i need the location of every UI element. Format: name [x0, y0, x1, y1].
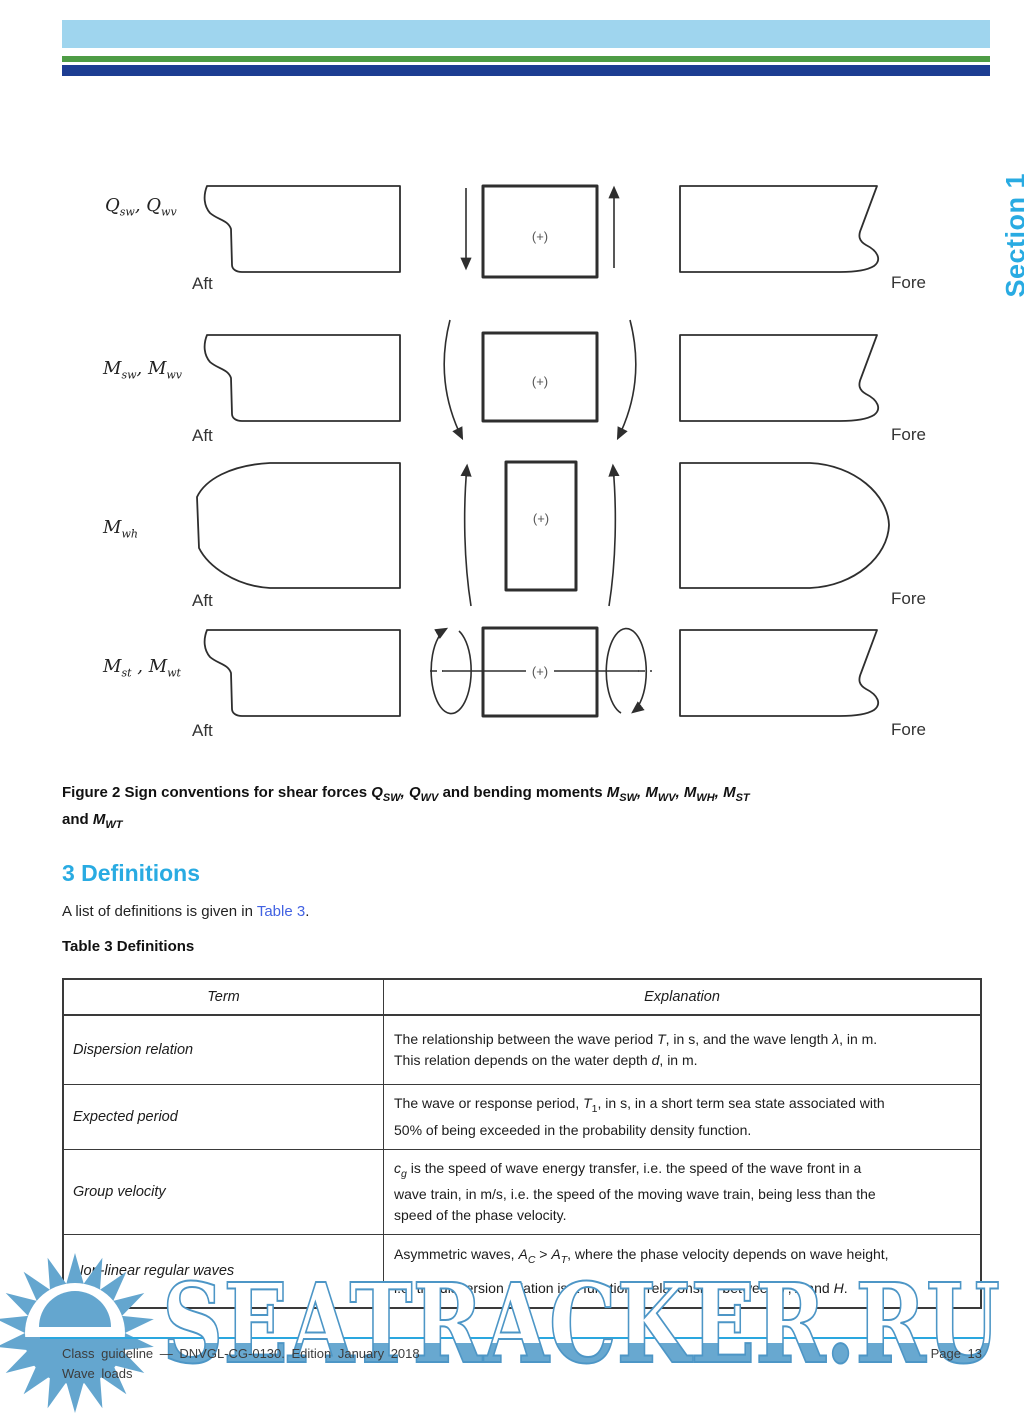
aft-hull-profile	[205, 186, 400, 272]
figure-caption: Figure 2 Sign conventions for shear forc…	[62, 782, 967, 836]
header-bar-lightblue	[62, 20, 990, 48]
plus-sign-label: (+)	[532, 229, 548, 244]
footer-guideline-id: Class guideline — DNVGL-CG-0130. Edition…	[62, 1344, 420, 1364]
footer-document-title: Wave loads	[62, 1364, 982, 1384]
plus-sign-label: (+)	[532, 374, 548, 389]
aft-hull-profile	[205, 335, 400, 421]
definitions-intro: A list of definitions is given in Table …	[62, 903, 309, 920]
fore-hull-profile	[680, 630, 878, 716]
aft-label: Aft	[192, 591, 213, 610]
aft-hull-plan	[197, 463, 400, 588]
table-header-explanation: Explanation	[384, 979, 982, 1015]
sun-logo	[0, 1253, 155, 1413]
table-3-link[interactable]: Table 3	[257, 903, 305, 920]
section-heading-definitions: 3 Definitions	[62, 860, 200, 887]
intro-text-suffix: .	[305, 903, 309, 920]
page-footer: Class guideline — DNVGL-CG-0130. Edition…	[62, 1344, 982, 1384]
header-bar-green	[62, 56, 990, 62]
fore-label: Fore	[891, 720, 926, 739]
aft-label: Aft	[192, 721, 213, 740]
aft-label: Aft	[192, 426, 213, 445]
explanation-cell: cg is the speed of wave energy transfer,…	[384, 1150, 982, 1235]
figure-row-label-vertical-bending: Msw, Mwv	[103, 358, 182, 382]
fore-label: Fore	[891, 425, 926, 444]
term-cell: Dispersion relation	[63, 1015, 384, 1085]
horiz-bending-arrow-left	[465, 466, 471, 606]
bending-arrow-left	[444, 320, 462, 438]
figure-row-label-shear: Qsw, Qwv	[105, 195, 177, 219]
figure-row-label-horizontal-bending: Mwh	[103, 517, 138, 541]
fore-hull-profile	[680, 186, 878, 272]
table-header-term: Term	[63, 979, 384, 1015]
table-row: Expected period The wave or response per…	[63, 1085, 981, 1150]
plus-sign-label: (+)	[532, 664, 548, 679]
fore-hull-plan	[680, 463, 889, 588]
explanation-cell: The relationship between the wave period…	[384, 1015, 982, 1085]
sign-box-row3	[506, 462, 576, 590]
table-title: Table 3 Definitions	[62, 938, 194, 955]
fore-label: Fore	[891, 273, 926, 292]
term-cell: Expected period	[63, 1085, 384, 1150]
table-header-row: Term Explanation	[63, 979, 981, 1015]
aft-hull-profile	[205, 630, 400, 716]
term-cell: Group velocity	[63, 1150, 384, 1235]
section-tab: Section 1	[1001, 158, 1024, 298]
horiz-bending-arrow-right	[609, 466, 615, 606]
plus-sign-label: (+)	[533, 511, 549, 526]
page: { "colors": { "bar-lightblue": "#9FD5EE"…	[0, 0, 1024, 1406]
bending-arrow-right	[618, 320, 636, 438]
fore-hull-profile	[680, 335, 878, 421]
table-row: Dispersion relation The relationship bet…	[63, 1015, 981, 1085]
definitions-table: Term Explanation Dispersion relation The…	[62, 978, 982, 1309]
aft-label: Aft	[192, 274, 213, 293]
header-bar-navy	[62, 65, 990, 76]
explanation-cell: The wave or response period, T1, in s, i…	[384, 1085, 982, 1150]
table-row: Group velocity cg is the speed of wave e…	[63, 1150, 981, 1235]
figure-sign-conventions: Aft Fore Aft Fore Aft Fore Aft Fore (+) …	[62, 170, 992, 760]
footer-page-number: Page 13	[931, 1344, 982, 1364]
figure-row-label-torsion: Mst , Mwt	[103, 656, 181, 680]
fore-label: Fore	[891, 589, 926, 608]
intro-text: A list of definitions is given in	[62, 903, 257, 920]
